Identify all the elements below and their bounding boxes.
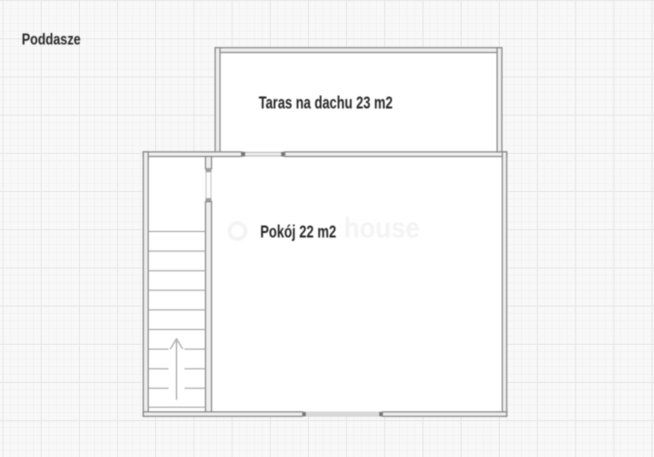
svg-text:Taras na dachu 23 m2: Taras na dachu 23 m2 [259,92,393,112]
svg-text:house: house [344,213,420,245]
svg-text:Pokój 22 m2: Pokój 22 m2 [260,222,336,242]
svg-text:Poddasze: Poddasze [22,32,81,49]
